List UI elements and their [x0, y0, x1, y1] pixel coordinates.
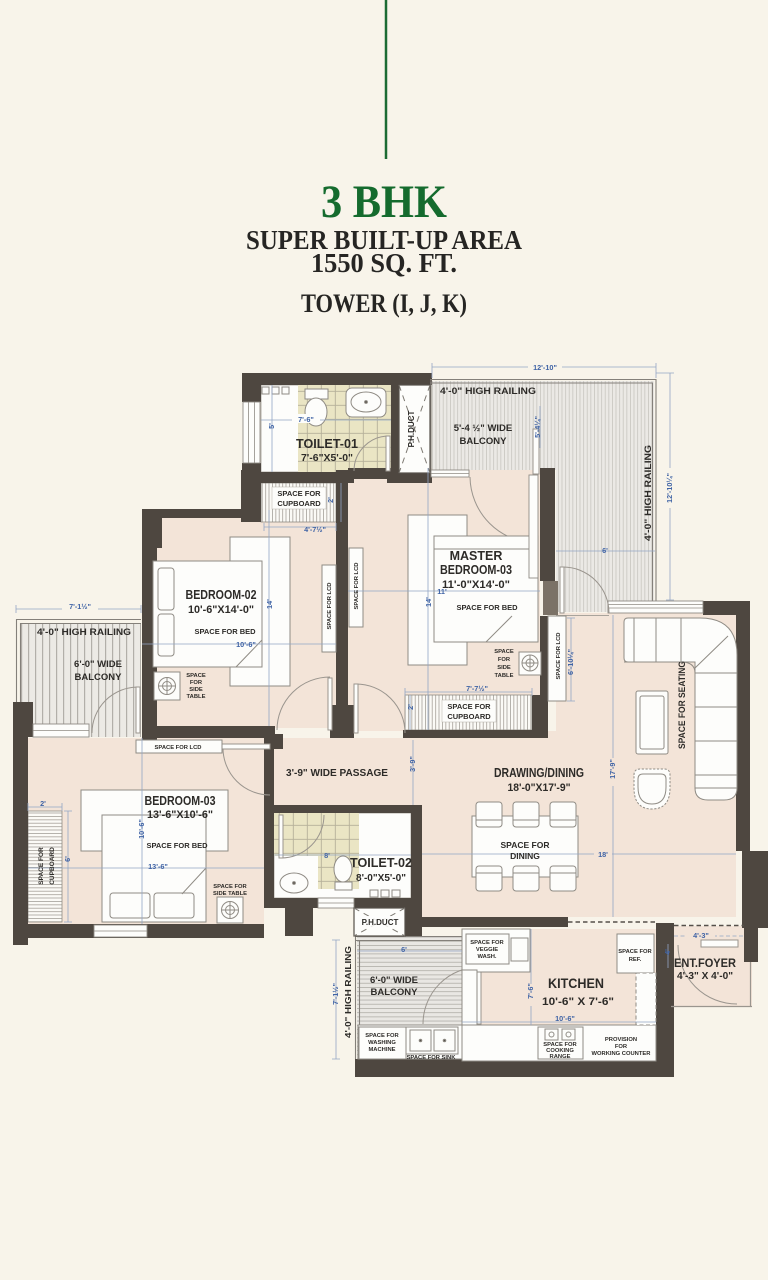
- svg-text:CUPBOARD: CUPBOARD: [49, 847, 56, 885]
- svg-text:SPACE FOR: SPACE FOR: [501, 840, 550, 850]
- svg-text:BALCONY: BALCONY: [460, 436, 508, 447]
- svg-text:2': 2': [326, 497, 335, 503]
- svg-text:SPACE FOR BED: SPACE FOR BED: [146, 841, 208, 850]
- svg-text:BEDROOM-03: BEDROOM-03: [145, 794, 216, 808]
- svg-text:TOILET-02: TOILET-02: [350, 855, 412, 870]
- svg-text:17'-9": 17'-9": [608, 759, 617, 779]
- svg-text:SPACE FOR: SPACE FOR: [470, 940, 504, 946]
- svg-text:SPACE FOR: SPACE FOR: [213, 884, 247, 890]
- svg-text:SPACE FOR SINK: SPACE FOR SINK: [407, 1055, 457, 1061]
- svg-text:ENT.FOYER: ENT.FOYER: [674, 956, 736, 970]
- svg-text:SPACE FOR: SPACE FOR: [365, 1033, 399, 1039]
- svg-text:SPACE FOR SEATING: SPACE FOR SEATING: [677, 661, 687, 749]
- svg-text:3'-9" WIDE PASSAGE: 3'-9" WIDE PASSAGE: [286, 768, 388, 779]
- svg-text:SPACE FOR: SPACE FOR: [447, 702, 491, 711]
- svg-text:RANGE: RANGE: [550, 1054, 571, 1060]
- svg-text:SPACE FOR LCD: SPACE FOR LCD: [327, 583, 333, 630]
- svg-text:REF.: REF.: [629, 957, 642, 963]
- svg-text:14': 14': [424, 597, 433, 607]
- svg-text:5': 5': [267, 423, 276, 429]
- svg-text:SPACE FOR: SPACE FOR: [277, 489, 321, 498]
- svg-text:10'-6" X 7'-6": 10'-6" X 7'-6": [542, 996, 614, 1008]
- svg-text:BALCONY: BALCONY: [371, 987, 419, 998]
- svg-text:SPACE FOR: SPACE FOR: [38, 847, 45, 885]
- svg-text:WASH.: WASH.: [477, 954, 496, 960]
- svg-text:1550 SQ. FT.: 1550 SQ. FT.: [311, 248, 457, 278]
- svg-text:BEDROOM-02: BEDROOM-02: [186, 588, 257, 602]
- svg-text:PROVISION: PROVISION: [605, 1037, 637, 1043]
- svg-text:TABLE: TABLE: [495, 673, 514, 679]
- svg-text:MACHINE: MACHINE: [368, 1047, 395, 1053]
- svg-text:4'-0" HIGH RAILING: 4'-0" HIGH RAILING: [643, 445, 654, 541]
- svg-text:7'-7½": 7'-7½": [466, 684, 488, 693]
- svg-text:10'-6": 10'-6": [555, 1014, 575, 1023]
- svg-text:2': 2': [40, 799, 46, 808]
- svg-text:BALCONY: BALCONY: [75, 672, 123, 683]
- svg-text:4'-7½": 4'-7½": [304, 525, 326, 534]
- svg-text:11'-0"X14'-0": 11'-0"X14'-0": [442, 579, 510, 591]
- svg-text:SPACE FOR LCD: SPACE FOR LCD: [556, 633, 562, 680]
- svg-text:SPACE: SPACE: [494, 649, 514, 655]
- svg-text:TABLE: TABLE: [187, 694, 206, 700]
- svg-text:3 BHK: 3 BHK: [321, 176, 447, 228]
- svg-text:5'-4¼": 5'-4¼": [533, 416, 542, 438]
- svg-text:4'-0" HIGH RAILING: 4'-0" HIGH RAILING: [37, 627, 131, 637]
- svg-text:6': 6': [401, 945, 407, 954]
- svg-text:FOR: FOR: [498, 657, 511, 663]
- svg-text:4'-0" HIGH RAILING: 4'-0" HIGH RAILING: [343, 946, 353, 1038]
- svg-text:10'-6": 10'-6": [236, 640, 256, 649]
- svg-text:2': 2': [406, 704, 415, 710]
- svg-text:3'-9": 3'-9": [408, 756, 417, 772]
- svg-text:13'-6"X10'-6": 13'-6"X10'-6": [147, 809, 213, 821]
- svg-text:BEDROOM-03: BEDROOM-03: [440, 563, 512, 577]
- svg-text:7'-1½": 7'-1½": [331, 983, 340, 1005]
- svg-text:4'-3": 4'-3": [693, 931, 709, 940]
- svg-text:SPACE FOR LCD: SPACE FOR LCD: [354, 563, 360, 610]
- svg-text:18'-0"X17'-9": 18'-0"X17'-9": [508, 782, 571, 794]
- svg-text:TOILET-01: TOILET-01: [296, 436, 358, 451]
- svg-text:7'-6": 7'-6": [526, 983, 535, 999]
- svg-text:DINING: DINING: [510, 851, 540, 861]
- svg-text:FOR: FOR: [615, 1044, 628, 1050]
- svg-text:6': 6': [63, 856, 72, 862]
- svg-text:SPACE FOR BED: SPACE FOR BED: [456, 603, 518, 612]
- svg-text:8': 8': [324, 851, 330, 860]
- svg-text:10'-6"X14'-0": 10'-6"X14'-0": [188, 604, 254, 616]
- svg-text:8'-0"X5'-0": 8'-0"X5'-0": [356, 872, 406, 884]
- svg-text:KITCHEN: KITCHEN: [548, 976, 604, 991]
- svg-text:FOR: FOR: [190, 680, 203, 686]
- svg-text:6': 6': [602, 546, 608, 555]
- svg-text:6'-10¼": 6'-10¼": [566, 649, 575, 675]
- svg-text:13'-6": 13'-6": [148, 862, 168, 871]
- svg-text:4': 4': [663, 949, 672, 955]
- svg-text:CUPBOARD: CUPBOARD: [447, 712, 491, 721]
- svg-text:SIDE: SIDE: [189, 687, 203, 693]
- svg-text:SIDE: SIDE: [497, 665, 511, 671]
- svg-text:4'-3" X 4'-0": 4'-3" X 4'-0": [677, 970, 733, 982]
- svg-text:6'-0" WIDE: 6'-0" WIDE: [74, 659, 122, 670]
- svg-text:14': 14': [265, 599, 274, 609]
- svg-text:TOWER (I, J, K): TOWER (I, J, K): [301, 289, 467, 318]
- svg-text:P.H.DUCT: P.H.DUCT: [362, 918, 399, 927]
- svg-text:WORKING COUNTER: WORKING COUNTER: [592, 1051, 652, 1057]
- svg-text:SPACE FOR LCD: SPACE FOR LCD: [155, 745, 202, 751]
- svg-text:DRAWING/DINING: DRAWING/DINING: [494, 766, 584, 780]
- svg-text:SPACE FOR BED: SPACE FOR BED: [194, 627, 256, 636]
- svg-text:4'-0" HIGH RAILING: 4'-0" HIGH RAILING: [440, 386, 536, 397]
- svg-text:SPACE FOR: SPACE FOR: [618, 949, 652, 955]
- svg-text:12'-10¼": 12'-10¼": [665, 473, 674, 503]
- svg-text:10'-6": 10'-6": [137, 819, 146, 839]
- svg-text:7'-1½": 7'-1½": [69, 602, 91, 611]
- svg-text:7'-6"X5'-0": 7'-6"X5'-0": [301, 452, 353, 464]
- svg-text:SIDE TABLE: SIDE TABLE: [213, 891, 247, 897]
- svg-text:18': 18': [598, 850, 608, 859]
- svg-text:7'-6": 7'-6": [298, 415, 314, 424]
- svg-text:12'-10": 12'-10": [533, 363, 557, 372]
- svg-text:MASTER: MASTER: [450, 549, 503, 563]
- svg-text:P.H.DUCT: P.H.DUCT: [407, 411, 416, 448]
- svg-text:SPACE: SPACE: [186, 673, 206, 679]
- svg-text:VEGGIE: VEGGIE: [476, 947, 498, 953]
- svg-text:CUPBOARD: CUPBOARD: [277, 499, 321, 508]
- svg-text:WASHING: WASHING: [368, 1040, 396, 1046]
- svg-text:6'-0" WIDE: 6'-0" WIDE: [370, 975, 418, 986]
- svg-text:5'-4 ½" WIDE: 5'-4 ½" WIDE: [454, 423, 513, 434]
